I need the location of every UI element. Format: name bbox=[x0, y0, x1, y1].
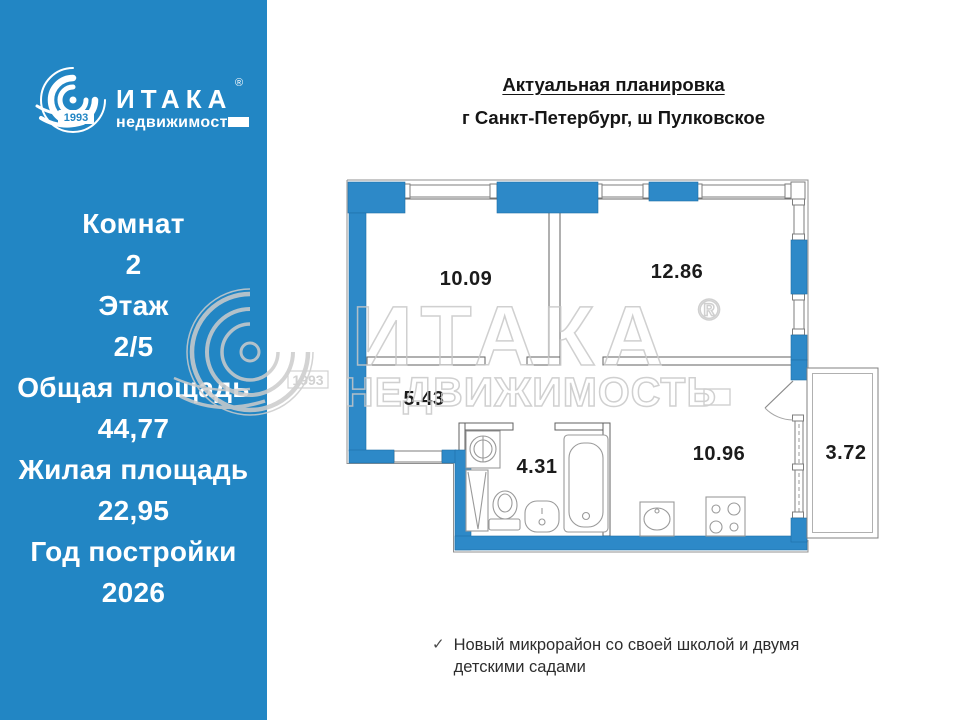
balcony-door bbox=[765, 381, 793, 420]
plan-panel: Актуальная планировка г Санкт-Петербург,… bbox=[267, 0, 960, 720]
info-rooms-label: Комнат bbox=[0, 203, 267, 244]
year-badge-label: 1993 bbox=[64, 112, 88, 124]
check-icon: ✓ bbox=[432, 634, 445, 679]
room-area-label: 4.31 bbox=[517, 456, 558, 478]
bathroom-fixtures bbox=[466, 431, 608, 532]
brand-name: ИТАКА bbox=[116, 84, 232, 114]
room-area-label: 12.86 bbox=[651, 261, 704, 283]
info-floor-value: 2/5 bbox=[0, 326, 267, 367]
kitchen-fixtures bbox=[640, 497, 745, 536]
footnote-text: Новый микрорайон со своей школой и двумя… bbox=[454, 634, 814, 679]
info-living-area-value: 22,95 bbox=[0, 490, 267, 531]
room-area-label: 3.72 bbox=[826, 442, 867, 464]
footnote: ✓ Новый микрорайон со своей школой и дву… bbox=[432, 634, 814, 679]
room-area-label: 5.43 bbox=[404, 388, 445, 410]
sidebar: 1993 ИТАКА ® недвижимость Комнат 2 Этаж … bbox=[0, 0, 267, 720]
address: г Санкт-Петербург, ш Пулковское bbox=[267, 107, 960, 129]
info-year-value: 2026 bbox=[0, 572, 267, 613]
itaka-logo: 1993 ИТАКА ® недвижимость bbox=[25, 50, 250, 145]
info-living-area-label: Жилая площадь bbox=[0, 449, 267, 490]
info-year-label: Год постройки bbox=[0, 531, 267, 572]
brand-subtitle: недвижимость bbox=[116, 114, 238, 131]
registered-mark: ® bbox=[235, 77, 243, 89]
plan-title: Актуальная планировка bbox=[267, 74, 960, 96]
plan-header: Актуальная планировка г Санкт-Петербург,… bbox=[267, 74, 960, 129]
room-area-label: 10.96 bbox=[693, 443, 746, 465]
info-rooms-value: 2 bbox=[0, 244, 267, 285]
listing-card: 1993 ИТАКА ® недвижимость Комнат 2 Этаж … bbox=[0, 0, 960, 720]
info-total-area-label: Общая площадь bbox=[0, 367, 267, 408]
info-total-area-value: 44,77 bbox=[0, 408, 267, 449]
floor-plan: 10.09 12.86 5.43 4.31 10.96 3.72 bbox=[340, 172, 890, 557]
room-area-label: 10.09 bbox=[440, 268, 493, 290]
info-floor-label: Этаж bbox=[0, 285, 267, 326]
brand-underscore bbox=[228, 117, 249, 127]
property-info: Комнат 2 Этаж 2/5 Общая площадь 44,77 Жи… bbox=[0, 203, 267, 613]
